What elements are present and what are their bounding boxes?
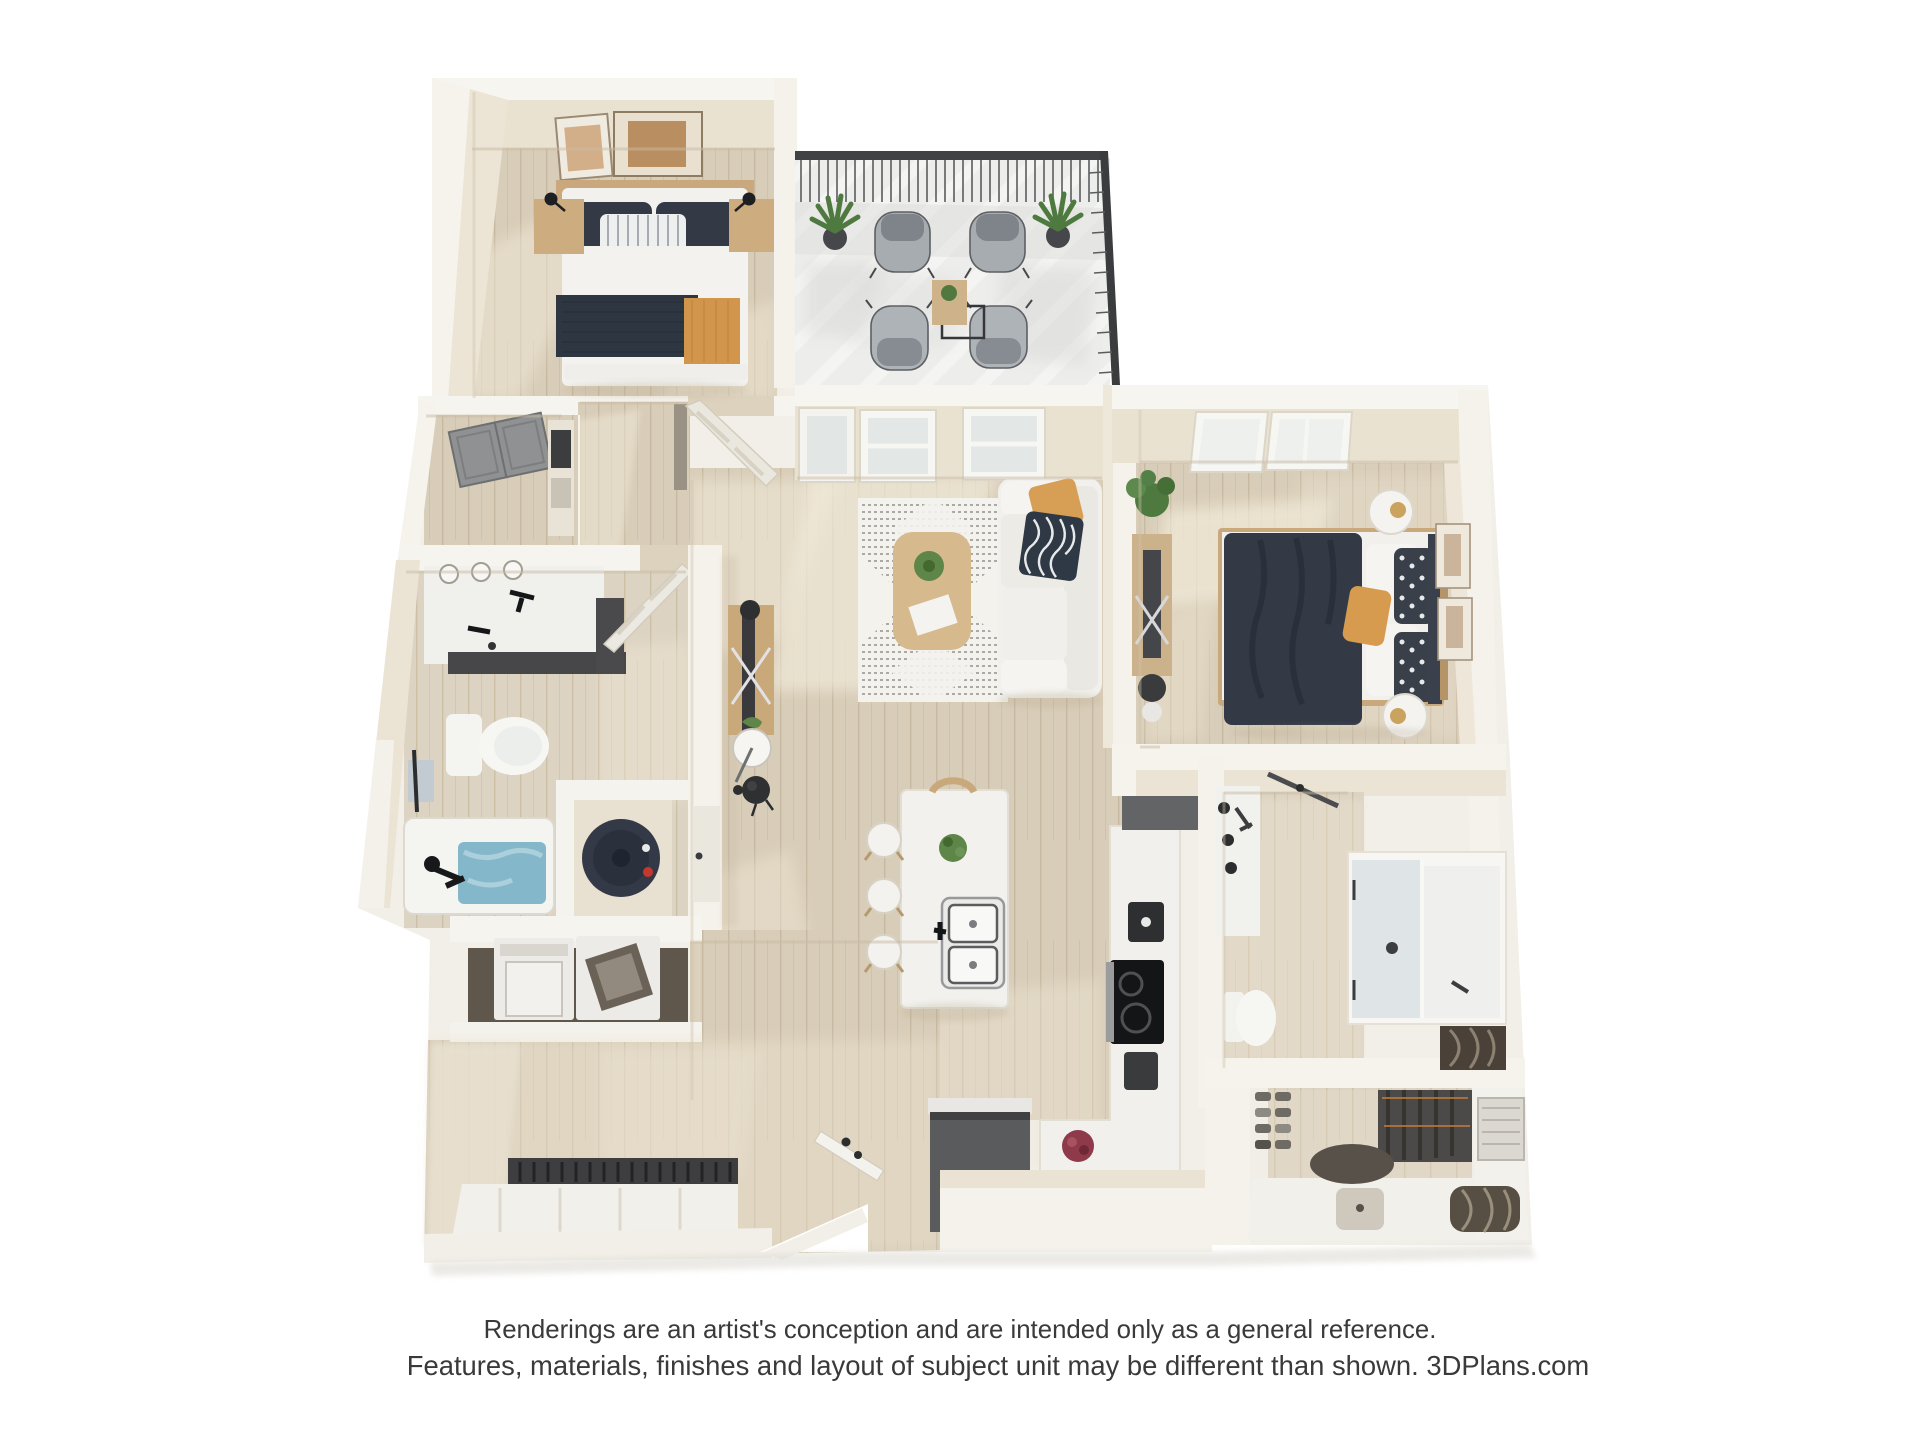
svg-text:Renderings are an artist's con: Renderings are an artist's conception an… (484, 1316, 1437, 1344)
svg-text:Features, materials, finishes: Features, materials, finishes and layout… (407, 1350, 1589, 1381)
